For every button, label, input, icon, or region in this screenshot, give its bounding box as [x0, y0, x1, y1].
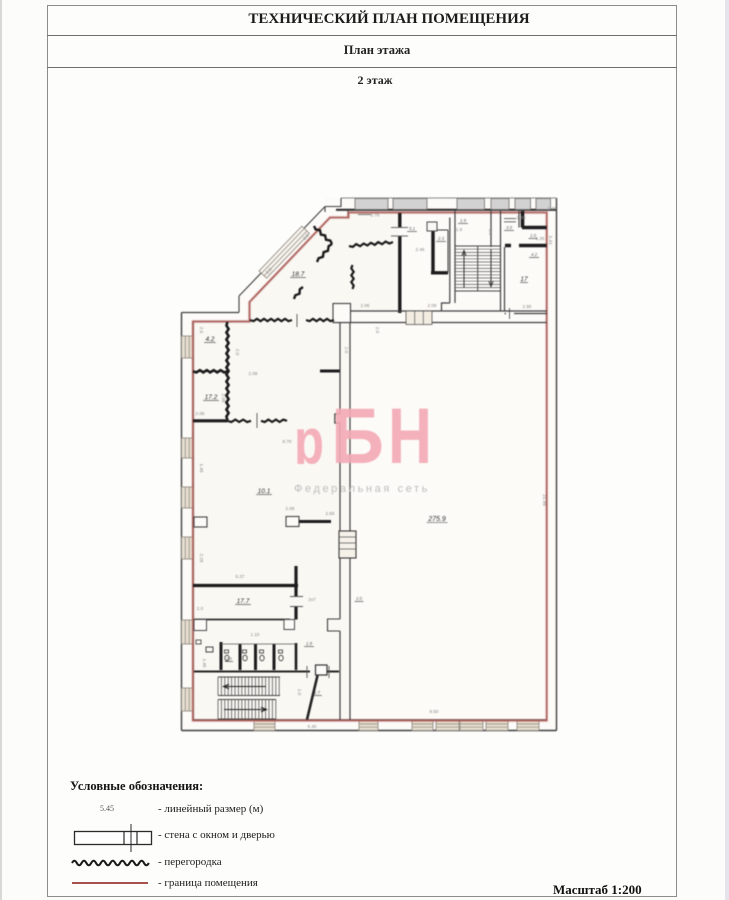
- svg-text:3.43: 3.43: [548, 236, 553, 245]
- svg-text:1.3: 1.3: [226, 656, 232, 661]
- svg-text:18.7: 18.7: [292, 271, 305, 278]
- svg-text:1.9: 1.9: [306, 641, 313, 646]
- svg-text:2.0: 2.0: [375, 327, 380, 334]
- svg-text:2.08: 2.08: [221, 394, 226, 403]
- svg-text:1.48: 1.48: [202, 659, 207, 668]
- svg-text:10.1: 10.1: [258, 488, 271, 495]
- svg-text:275.9: 275.9: [427, 516, 446, 523]
- svg-text:2.98: 2.98: [517, 215, 526, 220]
- svg-text:1.4: 1.4: [488, 229, 493, 236]
- svg-text:Н: Н: [388, 391, 432, 480]
- svg-text:4.2: 4.2: [531, 252, 538, 257]
- svg-text:2.08: 2.08: [249, 371, 258, 376]
- svg-text:2.0: 2.0: [344, 347, 349, 354]
- svg-text:1.0: 1.0: [297, 689, 302, 696]
- svg-text:2.08: 2.08: [286, 506, 295, 511]
- svg-text:1.0: 1.0: [530, 233, 536, 238]
- svg-text:3.0: 3.0: [506, 225, 513, 230]
- svg-text:21.98: 21.98: [542, 494, 547, 506]
- svg-text:1.7: 1.7: [314, 690, 321, 695]
- svg-text:2.06: 2.06: [196, 411, 205, 416]
- svg-text:17: 17: [520, 276, 528, 283]
- svg-text:2.76: 2.76: [371, 213, 380, 218]
- svg-text:6.40: 6.40: [308, 724, 317, 729]
- svg-text:2.08: 2.08: [428, 303, 437, 308]
- svg-text:2.06: 2.06: [361, 303, 370, 308]
- svg-text:8.70: 8.70: [283, 439, 292, 444]
- svg-text:Б: Б: [331, 391, 384, 480]
- svg-text:2x7: 2x7: [308, 597, 316, 602]
- svg-text:5.1: 5.1: [409, 226, 416, 231]
- svg-text:6.37: 6.37: [236, 574, 245, 579]
- svg-text:17.7: 17.7: [237, 598, 250, 605]
- svg-text:1.9: 1.9: [460, 218, 467, 223]
- svg-text:1.9: 1.9: [456, 227, 463, 232]
- svg-text:2.66: 2.66: [326, 511, 335, 516]
- svg-text:2.96: 2.96: [523, 304, 532, 309]
- svg-text:2.46: 2.46: [416, 247, 425, 252]
- svg-text:9.50: 9.50: [430, 709, 439, 714]
- svg-text:1.20: 1.20: [548, 206, 557, 211]
- svg-text:Федеральная сеть: Федеральная сеть: [294, 483, 430, 495]
- svg-text:2.3: 2.3: [437, 236, 445, 241]
- svg-text:2.0: 2.0: [235, 349, 240, 356]
- svg-text:2.6: 2.6: [199, 327, 204, 334]
- svg-text:1.48: 1.48: [199, 464, 204, 473]
- svg-text:1.10: 1.10: [251, 632, 260, 637]
- svg-text:2.28: 2.28: [199, 554, 204, 563]
- svg-text:2.0: 2.0: [355, 596, 362, 601]
- svg-text:2.0: 2.0: [197, 606, 204, 611]
- svg-text:4.2: 4.2: [205, 336, 214, 343]
- svg-text:17.2: 17.2: [205, 394, 218, 401]
